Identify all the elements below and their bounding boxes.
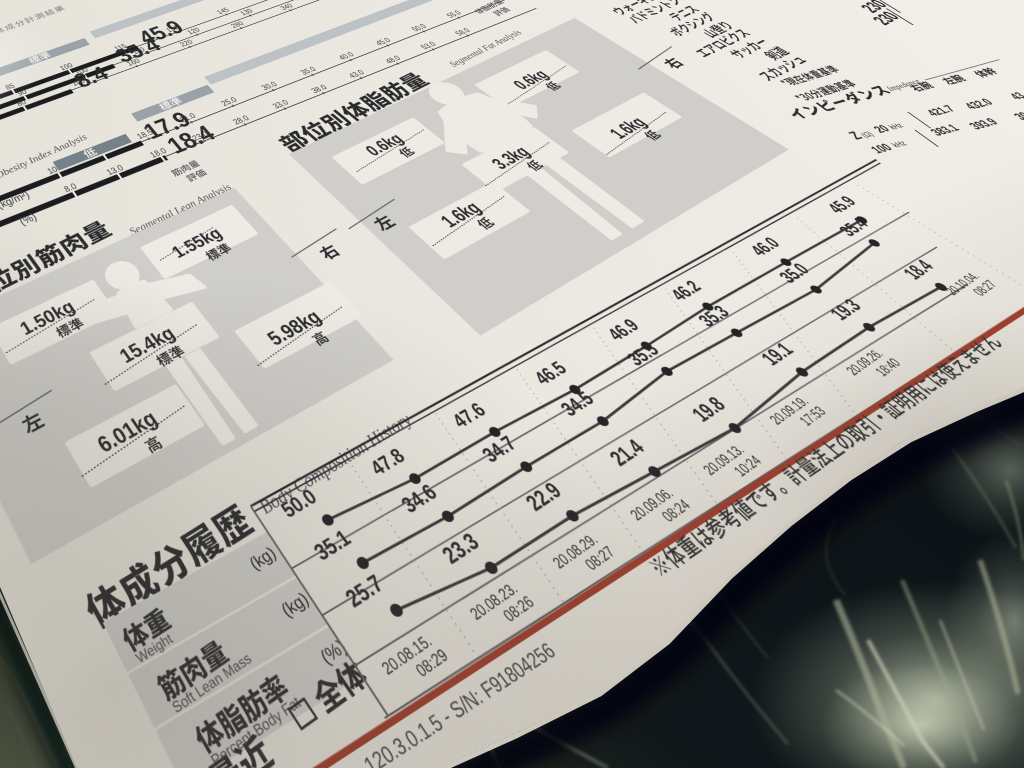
svg-text:Percent Body Fat: Percent Body Fat: [209, 694, 305, 768]
svg-text:80: 80: [15, 99, 28, 108]
svg-text:08:26: 08:26: [500, 593, 538, 626]
svg-text:45.0: 45.0: [374, 37, 393, 47]
svg-text:0.6kg: 0.6kg: [361, 131, 407, 160]
svg-text:45.9: 45.9: [134, 17, 189, 48]
svg-text:Segmental Fat Analysis: Segmental Fat Analysis: [446, 28, 524, 68]
svg-text:3.3kg: 3.3kg: [487, 143, 535, 173]
svg-text:33.0: 33.0: [271, 99, 291, 111]
svg-text:40.0: 40.0: [337, 51, 356, 62]
svg-text:(%): (%): [17, 211, 39, 228]
svg-text:(kg): (kg): [246, 543, 280, 574]
svg-text:46.5: 46.5: [530, 358, 572, 389]
svg-text:08:29: 08:29: [413, 646, 452, 681]
svg-text:20.08.23.: 20.08.23.: [467, 580, 521, 624]
svg-text:25.7: 25.7: [341, 570, 389, 613]
svg-text:21.4: 21.4: [605, 435, 650, 471]
svg-text:Soft Lean Mass: Soft Lean Mass: [170, 651, 255, 717]
svg-text:5.98kg: 5.98kg: [263, 307, 326, 351]
svg-text:130: 130: [239, 8, 255, 17]
svg-text:43.0: 43.0: [347, 69, 367, 80]
svg-text:20.09.06.: 20.09.06.: [628, 486, 678, 525]
svg-text:50.0: 50.0: [277, 485, 322, 523]
svg-text:34.5: 34.5: [556, 388, 599, 421]
svg-text:20.08.29.: 20.08.29.: [550, 531, 602, 572]
svg-text:115: 115: [113, 43, 129, 52]
svg-text:58.0: 58.0: [454, 27, 473, 37]
svg-text:47.8: 47.8: [366, 444, 410, 480]
svg-text:130: 130: [165, 25, 181, 34]
svg-text:8.4: 8.4: [70, 63, 114, 92]
svg-text:45.9: 45.9: [823, 193, 860, 217]
svg-text:230: 230: [868, 9, 905, 28]
svg-text:18.0: 18.0: [148, 147, 168, 160]
svg-text:100: 100: [867, 142, 895, 156]
svg-text:340: 340: [279, 3, 295, 12]
svg-text:432.0: 432.0: [961, 97, 996, 112]
svg-text:21.0: 21.0: [178, 112, 198, 124]
svg-text:160: 160: [125, 58, 141, 68]
svg-text:17:53: 17:53: [797, 404, 830, 429]
svg-text:35.4: 35.4: [110, 35, 166, 67]
svg-text:Body Composition History: Body Composition History: [256, 410, 417, 518]
svg-text:08:27: 08:27: [582, 544, 619, 575]
svg-text:kHz: kHz: [888, 139, 909, 149]
svg-text:34.7: 34.7: [477, 432, 521, 467]
svg-text:1.50kg: 1.50kg: [17, 297, 79, 339]
svg-text:23.0: 23.0: [190, 130, 210, 143]
svg-text:85: 85: [4, 82, 16, 91]
svg-text:39: 39: [1010, 110, 1024, 122]
svg-text:20.08.15.: 20.08.15.: [379, 632, 436, 679]
svg-text:17.9: 17.9: [138, 107, 196, 143]
svg-text:100: 100: [70, 77, 87, 87]
svg-text:0.6kg: 0.6kg: [509, 67, 553, 92]
svg-text:53.0: 53.0: [419, 41, 438, 52]
svg-text:55.0: 55.0: [445, 10, 464, 20]
svg-text:43: 43: [1006, 90, 1024, 102]
svg-text:120: 120: [186, 27, 202, 36]
svg-text:30.0: 30.0: [260, 81, 279, 92]
svg-text:230: 230: [856, 0, 892, 16]
svg-text:220: 220: [178, 39, 194, 49]
svg-text:28.0: 28.0: [231, 114, 251, 126]
svg-text:Segmental Lean Analysis: Segmental Lean Analysis: [127, 182, 234, 238]
svg-text:145: 145: [215, 7, 231, 16]
svg-text:35.1: 35.1: [309, 525, 355, 566]
svg-text:100: 100: [74, 66, 90, 76]
svg-text:Z: Z: [846, 130, 867, 143]
svg-text:23.3: 23.3: [437, 528, 484, 569]
svg-text:100: 100: [58, 62, 74, 72]
svg-text:35.5: 35.5: [622, 339, 664, 370]
svg-text:13.0: 13.0: [105, 164, 126, 178]
svg-text:46.9: 46.9: [603, 315, 644, 344]
svg-text:110: 110: [131, 46, 147, 56]
svg-text:35.3: 35.3: [694, 302, 735, 331]
svg-text:kHz: kHz: [885, 121, 905, 131]
svg-text:1.55kg: 1.55kg: [168, 225, 226, 262]
svg-text:34.6: 34.6: [397, 480, 442, 518]
svg-text:25.0: 25.0: [220, 96, 240, 108]
svg-text:421.7: 421.7: [923, 103, 958, 118]
svg-text:15.4kg: 15.4kg: [116, 323, 180, 368]
svg-text:08:24: 08:24: [659, 497, 694, 526]
svg-text:383.1: 383.1: [927, 122, 963, 138]
svg-text:Obesity Index Analysis: Obesity Index Analysis: [0, 133, 90, 181]
svg-text:18.4: 18.4: [161, 121, 220, 159]
svg-text:18:40: 18:40: [873, 356, 905, 379]
svg-text:280: 280: [230, 20, 246, 29]
svg-text:48.0: 48.0: [384, 55, 403, 66]
svg-text:Impedance: Impedance: [883, 78, 924, 93]
svg-text:15.0: 15.0: [91, 145, 111, 158]
svg-text:19.3: 19.3: [825, 296, 866, 325]
svg-text:(%): (%): [316, 635, 350, 668]
svg-text:8.0: 8.0: [62, 182, 78, 194]
svg-text:(kg): (kg): [277, 588, 312, 621]
svg-text:20.09.13.: 20.09.13.: [701, 442, 749, 478]
svg-text:18.4: 18.4: [898, 256, 939, 283]
svg-text:38.0: 38.0: [310, 84, 330, 96]
svg-text:08:27: 08:27: [971, 278, 1001, 298]
svg-text:1.6kg: 1.6kg: [605, 114, 652, 142]
svg-text:Weight: Weight: [134, 632, 176, 668]
svg-text:35.0: 35.0: [299, 66, 318, 77]
svg-text:20.10.04.: 20.10.04.: [943, 270, 983, 298]
svg-text:6.01kg: 6.01kg: [94, 407, 163, 458]
svg-text:50.0: 50.0: [410, 23, 429, 33]
svg-text:90: 90: [16, 88, 28, 97]
svg-text:10.0: 10.0: [46, 163, 66, 176]
svg-text:19.1: 19.1: [756, 339, 798, 370]
svg-text:393.9: 393.9: [965, 116, 1001, 132]
svg-text:(Ω): (Ω): [858, 130, 876, 139]
svg-text:(kg/m²): (kg/m²): [0, 189, 32, 211]
svg-text:20.09.26.: 20.09.26.: [844, 347, 888, 378]
svg-text:46.0: 46.0: [746, 234, 785, 259]
svg-text:47.6: 47.6: [448, 399, 491, 432]
svg-text:20: 20: [870, 123, 893, 135]
svg-text:20.09.19.: 20.09.19.: [767, 394, 813, 428]
svg-text:1.6kg: 1.6kg: [436, 198, 486, 231]
svg-text:10:24: 10:24: [731, 453, 765, 480]
svg-text:18.5: 18.5: [135, 128, 155, 141]
svg-text:35.4: 35.4: [835, 215, 874, 240]
svg-text:22.9: 22.9: [521, 478, 567, 516]
svg-text:46.2: 46.2: [666, 277, 706, 304]
svg-text:35.0: 35.0: [775, 260, 815, 287]
svg-text:19.8: 19.8: [687, 393, 731, 427]
